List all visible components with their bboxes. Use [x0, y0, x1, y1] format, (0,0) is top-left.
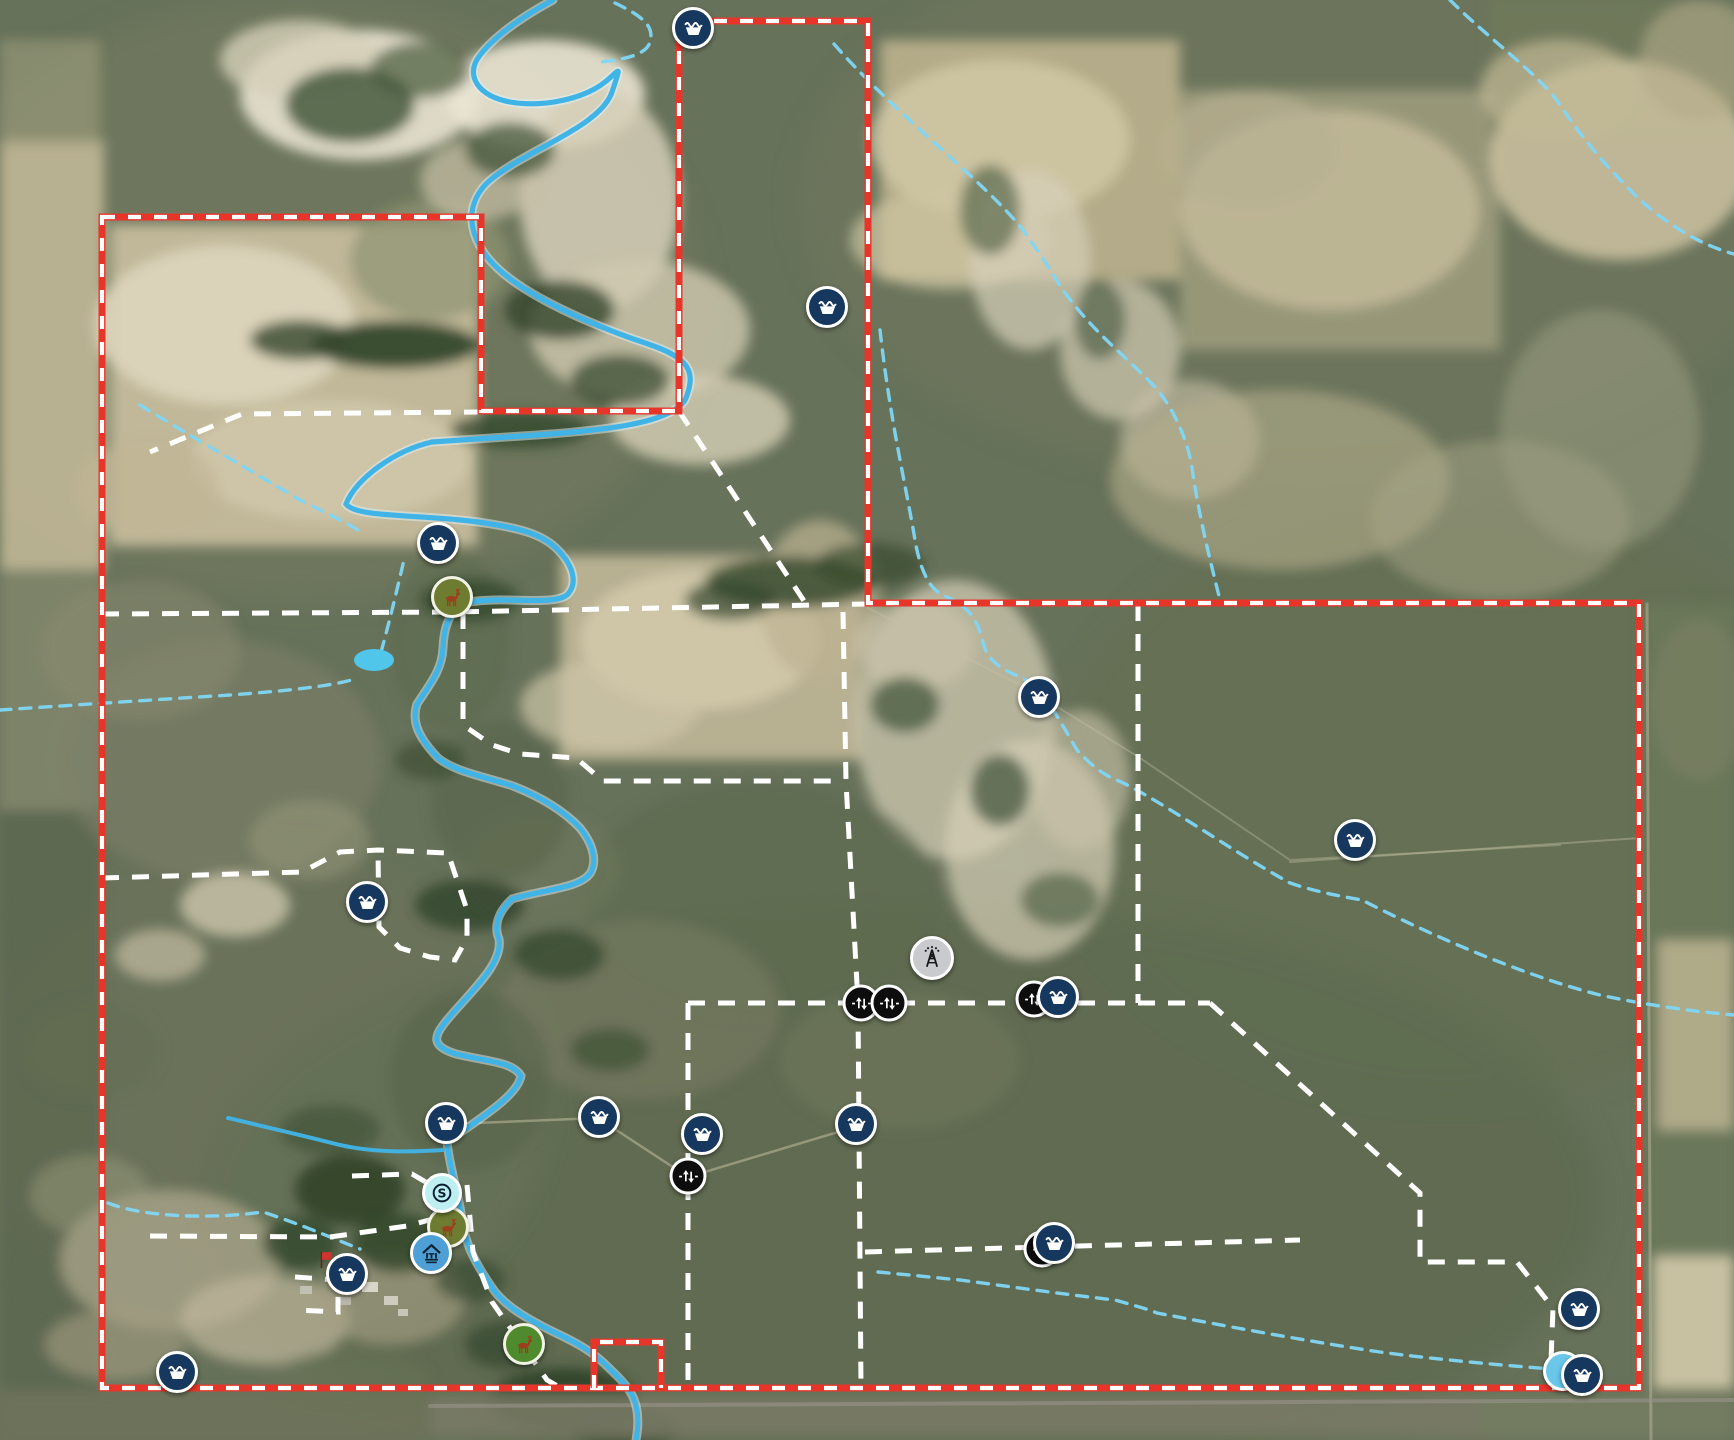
- trough-marker[interactable]: [1033, 1222, 1075, 1264]
- trough-marker[interactable]: [346, 881, 388, 923]
- deer-olive-marker[interactable]: [431, 576, 473, 618]
- trough-marker[interactable]: [835, 1103, 877, 1145]
- well-icon: [418, 1240, 445, 1267]
- gate-marker[interactable]: [871, 985, 908, 1022]
- gate-icon: [849, 991, 873, 1015]
- trough-icon: [1041, 1230, 1068, 1257]
- trough-icon: [433, 1110, 460, 1137]
- deer-green-marker[interactable]: [503, 1323, 545, 1365]
- trough-marker[interactable]: [681, 1113, 723, 1155]
- trough-marker[interactable]: [578, 1096, 620, 1138]
- markers-layer: [0, 0, 1734, 1440]
- trough-marker[interactable]: [1334, 819, 1376, 861]
- trough-icon: [1045, 984, 1072, 1011]
- gate-icon: [676, 1164, 700, 1188]
- well-marker[interactable]: [410, 1232, 452, 1274]
- tower-marker[interactable]: [910, 936, 954, 980]
- trough-icon: [586, 1104, 613, 1131]
- trough-marker[interactable]: [156, 1351, 198, 1393]
- gate-icon: [877, 991, 901, 1015]
- trough-icon: [843, 1111, 870, 1138]
- station-s-marker[interactable]: [422, 1173, 462, 1213]
- trough-icon: [680, 15, 707, 42]
- trough-marker[interactable]: [1037, 976, 1079, 1018]
- deer-icon: [511, 1331, 538, 1358]
- trough-icon: [334, 1261, 361, 1288]
- trough-icon: [354, 889, 381, 916]
- trough-marker[interactable]: [326, 1253, 368, 1295]
- trough-icon: [814, 294, 841, 321]
- s-icon: [429, 1180, 455, 1206]
- trough-icon: [1569, 1362, 1596, 1389]
- trough-marker[interactable]: [425, 1102, 467, 1144]
- tower-icon: [918, 944, 946, 972]
- trough-marker[interactable]: [806, 286, 848, 328]
- deer-icon: [439, 584, 466, 611]
- trough-icon: [164, 1359, 191, 1386]
- trough-marker[interactable]: [1018, 676, 1060, 718]
- trough-icon: [1342, 827, 1369, 854]
- trough-marker[interactable]: [1558, 1288, 1600, 1330]
- map-canvas[interactable]: S: [0, 0, 1734, 1440]
- trough-icon: [1566, 1296, 1593, 1323]
- trough-marker[interactable]: [1561, 1354, 1603, 1396]
- trough-icon: [425, 530, 452, 557]
- trough-icon: [1026, 684, 1053, 711]
- trough-marker[interactable]: [417, 522, 459, 564]
- gate-marker[interactable]: [670, 1158, 707, 1195]
- trough-icon: [689, 1121, 716, 1148]
- trough-marker[interactable]: [672, 7, 714, 49]
